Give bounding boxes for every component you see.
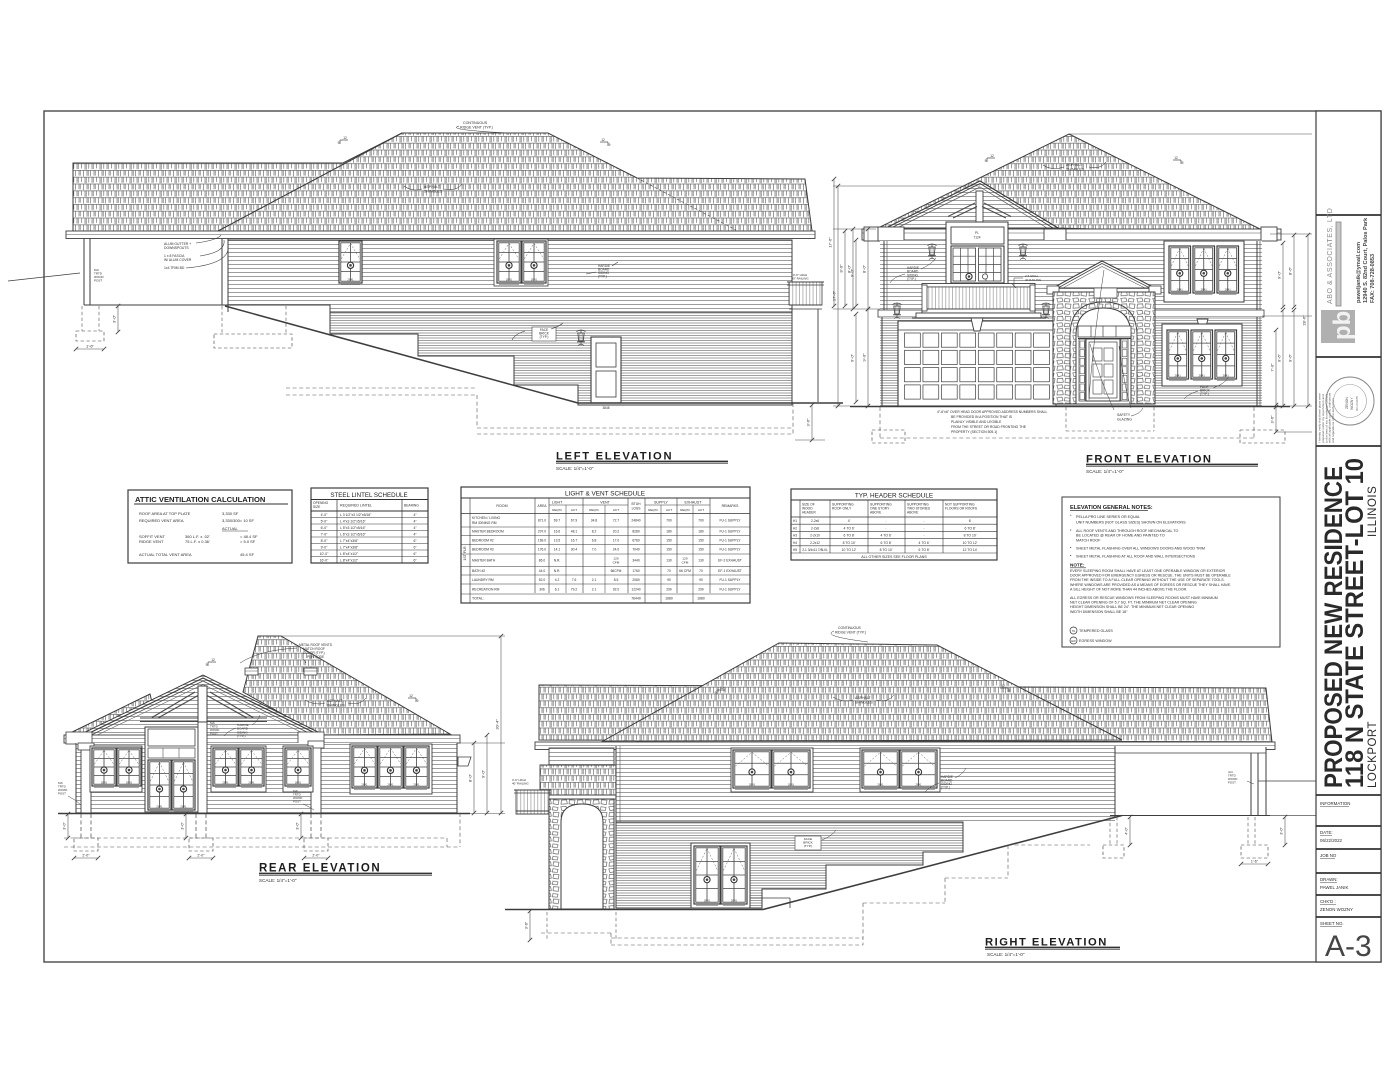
svg-text:13.5: 13.5 (554, 538, 561, 542)
svg-text:92.0: 92.0 (613, 587, 620, 591)
svg-text:4 TO 6': 4 TO 6' (919, 541, 930, 545)
svg-text:PAWEL JANIK: PAWEL JANIK (1320, 885, 1348, 890)
svg-text:2-2x8: 2-2x8 (811, 526, 819, 530)
svg-text:9: 9 (206, 663, 208, 667)
svg-text:WHERE WINDOWS ARE PROVIDED AS: WHERE WINDOWS ARE PROVIDED AS A MEANS OF… (1070, 583, 1231, 587)
svg-text:5'-0": 5'-0" (321, 520, 329, 524)
svg-text:700: 700 (698, 519, 704, 523)
svg-text:L 7"x4"x3/8": L 7"x4"x3/8" (340, 546, 359, 550)
svg-text:RECREATION RM: RECREATION RM (472, 587, 500, 591)
svg-text:12: 12 (343, 136, 347, 140)
svg-text:150: 150 (698, 538, 704, 542)
svg-text:10 TO 12': 10 TO 12' (842, 548, 857, 552)
svg-text:1680: 1680 (665, 597, 673, 601)
svg-text:8'-0": 8'-0" (468, 773, 473, 782)
svg-text:150: 150 (698, 548, 704, 552)
svg-text:LAUNDRY RM: LAUNDRY RM (472, 578, 494, 582)
svg-text:2.1: 2.1 (592, 578, 597, 582)
svg-text:ACTUAL: ACTUAL (222, 526, 239, 531)
svg-text:ALL EGRESS OR RESCUE WINDOWS F: ALL EGRESS OR RESCUE WINDOWS FROM SLEEPI… (1070, 596, 1218, 600)
svg-text:7124: 7124 (973, 236, 980, 240)
svg-text:2841: 2841 (1223, 374, 1230, 378)
svg-text:3'-6": 3'-6" (525, 921, 529, 929)
svg-text:CONTINUOUS: CONTINUOUS (838, 626, 862, 630)
svg-text:17.0: 17.0 (613, 538, 620, 542)
svg-text:8'-0": 8'-0" (321, 539, 329, 543)
svg-text:180: 180 (666, 530, 672, 534)
svg-text:6 TO 8': 6 TO 8' (844, 534, 855, 538)
svg-text:EGRESS WINDOW: EGRESS WINDOW (1079, 639, 1112, 643)
svg-text:4': 4' (848, 519, 851, 523)
svg-text:2841: 2841 (1225, 288, 1232, 292)
svg-text:EW: EW (1071, 639, 1076, 643)
svg-text:FAX: 708-728-0853: FAX: 708-728-0853 (1370, 254, 1376, 303)
svg-text:SHEET METAL FLASHING OVER ALL: SHEET METAL FLASHING OVER ALL WINDOWS DO… (1076, 547, 1205, 551)
svg-text:FU-1 SUPPLY: FU-1 SUPPLY (719, 538, 741, 542)
svg-text:NET CLEAR OPENING OF 5.7 SQ. F: NET CLEAR OPENING OF 5.7 SQ. FT. THE MIN… (1070, 601, 1197, 605)
svg-text:POST: POST (1228, 781, 1236, 785)
svg-text:MASTER BATH: MASTER BATH (472, 559, 496, 563)
svg-text:24840: 24840 (631, 519, 640, 523)
svg-text:-: - (885, 526, 886, 530)
svg-text:8'-0": 8'-0" (847, 264, 852, 273)
svg-text:3,330 SF: 3,330 SF (222, 511, 239, 516)
svg-text:ACT: ACT (666, 508, 672, 512)
svg-text:2841: 2841 (222, 781, 229, 785)
svg-text:2-1 3/4x11 7/8LVL: 2-1 3/4x11 7/8LVL (802, 548, 828, 552)
svg-text:12: 12 (211, 658, 215, 662)
svg-text:6760: 6760 (632, 538, 640, 542)
svg-text:ELEVATION GENERAL NOTES:: ELEVATION GENERAL NOTES: (1070, 505, 1153, 511)
svg-text:CFM: CFM (682, 560, 689, 564)
svg-text:2841: 2841 (1175, 374, 1182, 378)
svg-text:4"-6"x6" OVER HEAD DOOR APPROV: 4"-6"x6" OVER HEAD DOOR APPROVED ADDRESS… (937, 410, 1048, 414)
svg-text:2841: 2841 (101, 781, 108, 785)
svg-text:40" RAILING: 40" RAILING (791, 277, 809, 281)
svg-text:SHINGLES: SHINGLES (855, 701, 873, 705)
svg-text:SCALE: 1/4"=1'-0": SCALE: 1/4"=1'-0" (556, 466, 594, 471)
svg-text:17'-6": 17'-6" (832, 290, 837, 301)
svg-text:UNIT NUMBERS (NOT GLASS SIZES): UNIT NUMBERS (NOT GLASS SIZES) SHOWN ON … (1076, 521, 1186, 525)
svg-text:A-3: A-3 (1325, 930, 1372, 963)
svg-text:JOB NO: JOB NO (1320, 853, 1337, 858)
svg-text:BEDROOM #3: BEDROOM #3 (472, 548, 494, 552)
svg-text:ALL OTHER SIZES SEE FLOOR PLAN: ALL OTHER SIZES SEE FLOOR PLANS (861, 555, 927, 559)
svg-text:30'-4": 30'-4" (495, 719, 500, 730)
svg-text:6'-0": 6'-0" (321, 526, 329, 530)
svg-text:INFORMATION: INFORMATION (1320, 801, 1350, 806)
svg-text:90: 90 (699, 578, 703, 582)
svg-text:H4: H4 (793, 541, 797, 545)
svg-text:90: 90 (667, 578, 671, 582)
svg-text:17'-6": 17'-6" (828, 237, 833, 248)
svg-text:L 8"x4"x1/2": L 8"x4"x1/2" (340, 559, 359, 563)
svg-text:2'-0": 2'-0" (82, 854, 90, 858)
svg-text:7'-0": 7'-0" (1270, 363, 1275, 372)
svg-text:2841: 2841 (1177, 288, 1184, 292)
svg-text:9'-0": 9'-0" (1277, 270, 1282, 279)
svg-text:6.1: 6.1 (555, 587, 560, 591)
svg-text:-: - (923, 526, 924, 530)
svg-text:ACT: ACT (613, 508, 619, 512)
svg-text:130: 130 (698, 559, 704, 563)
svg-text:-: - (923, 519, 924, 523)
svg-text:H5: H5 (793, 548, 797, 552)
svg-text:DOOR APPROVED FOR EMERGENCY EG: DOOR APPROVED FOR EMERGENCY EGRESS OR RE… (1070, 574, 1231, 578)
svg-text:(TYP.): (TYP.) (941, 786, 950, 790)
svg-text:3'-0": 3'-0" (181, 822, 185, 830)
svg-text:7'-0": 7'-0" (321, 533, 329, 537)
svg-text:2'-0": 2'-0" (197, 854, 205, 858)
svg-text:H2: H2 (793, 526, 797, 530)
svg-text:(TYP.): (TYP.) (237, 734, 246, 738)
svg-text:VENT: VENT (600, 501, 610, 505)
svg-text:16'-0": 16'-0" (320, 559, 329, 563)
svg-text:POST: POST (94, 279, 102, 283)
svg-text:AREA: AREA (538, 504, 548, 508)
svg-text:8'-0": 8'-0" (839, 264, 844, 273)
svg-text:9'-0": 9'-0" (862, 353, 867, 362)
svg-text:(TYP.): (TYP.) (598, 275, 607, 279)
svg-text:20.2: 20.2 (613, 530, 620, 534)
svg-text:EF-1 EXHAUST: EF-1 EXHAUST (718, 569, 742, 573)
svg-text:2841: 2841 (180, 805, 187, 809)
svg-text:FU-1 SUPPLY: FU-1 SUPPLY (719, 548, 741, 552)
svg-text:A SILL HEIGHT OF NOT MORE THAN: A SILL HEIGHT OF NOT MORE THAN 44 INCHES… (1070, 587, 1187, 591)
svg-text:HEIGHT DIMENSION SHALL BE 24".: HEIGHT DIMENSION SHALL BE 24". THE MINIM… (1070, 605, 1194, 609)
svg-text:FU-1 SUPPLY: FU-1 SUPPLY (719, 578, 741, 582)
svg-text:306: 306 (539, 587, 545, 591)
svg-text:STEEL LINTEL SCHEDULE: STEEL LINTEL SCHEDULE (330, 492, 407, 499)
svg-text:70: 70 (667, 569, 671, 573)
svg-text:10 TO 12': 10 TO 12' (963, 541, 978, 545)
svg-text:BATH #2: BATH #2 (472, 569, 485, 573)
svg-text:44.0: 44.0 (539, 569, 546, 573)
svg-text:4 TO 6': 4 TO 6' (881, 534, 892, 538)
svg-text:06/22/2022: 06/22/2022 (1320, 838, 1343, 843)
svg-text:TG: TG (1072, 629, 1076, 633)
svg-text:2841: 2841 (704, 899, 711, 903)
svg-text:9: 9 (338, 141, 340, 145)
svg-text:SHEET METAL FLASHING AT ALL RO: SHEET METAL FLASHING AT ALL ROOF AND WAL… (1076, 555, 1196, 559)
svg-text:8 TO 10': 8 TO 10' (880, 548, 893, 552)
svg-text:8'-0": 8'-0" (862, 264, 867, 273)
svg-text:4 TO 6': 4 TO 6' (844, 526, 855, 530)
svg-text:ROOM: ROOM (496, 504, 507, 508)
svg-text:6': 6' (969, 519, 972, 523)
svg-text:9'-0": 9'-0" (321, 546, 329, 550)
svg-text:9'-6": 9'-6" (1288, 353, 1293, 362)
svg-text:9: 9 (1009, 689, 1011, 693)
svg-text:FU-1 SUPPLY: FU-1 SUPPLY (719, 587, 741, 591)
svg-text:3440: 3440 (632, 559, 640, 563)
svg-text:ROOF ONLY: ROOF ONLY (832, 507, 852, 511)
svg-text:2841: 2841 (156, 805, 163, 809)
svg-text:4'-0": 4'-0" (1125, 827, 1129, 835)
svg-text:66CFM: 66CFM (611, 569, 622, 573)
svg-text:(TYP.): (TYP.) (540, 335, 549, 339)
svg-text:2841: 2841 (413, 783, 420, 787)
svg-text:GLAZING: GLAZING (1117, 418, 1132, 422)
svg-text:TEMPERED GLASS: TEMPERED GLASS (1079, 629, 1113, 633)
svg-text:8.5: 8.5 (614, 578, 619, 582)
svg-text:REQUIRED VENT AREA: REQUIRED VENT AREA (139, 518, 184, 523)
svg-text:L 6"x3 1/2"x5/16": L 6"x3 1/2"x5/16" (340, 533, 367, 537)
svg-text:TYP. HEADER SCHEDULE: TYP. HEADER SCHEDULE (855, 493, 933, 500)
svg-text:2080: 2080 (632, 578, 640, 582)
svg-text:BTUH: BTUH (632, 502, 642, 506)
svg-text:40" RAILING: 40" RAILING (512, 782, 529, 786)
svg-text:2-2x10: 2-2x10 (810, 534, 820, 538)
svg-text:12: 12 (1174, 156, 1178, 160)
svg-text:12 TO 14': 12 TO 14' (963, 548, 978, 552)
svg-text:SCALE: 1/4"=1'-0": SCALE: 1/4"=1'-0" (259, 878, 297, 883)
svg-text:79.2: 79.2 (571, 587, 578, 591)
svg-text:4'-0": 4'-0" (321, 513, 329, 517)
svg-text:ABO & ASSOCIATES, LTD: ABO & ASSOCIATES, LTD (1327, 208, 1334, 304)
svg-text:3'-0": 3'-0" (63, 822, 67, 830)
svg-text:6 TO 8': 6 TO 8' (919, 548, 930, 552)
svg-text:H3: H3 (793, 534, 797, 538)
svg-text:10'-0": 10'-0" (320, 552, 329, 556)
svg-text:FROM THE STREET OR ROAD FRONTI: FROM THE STREET OR ROAD FRONTING THE (951, 425, 1027, 429)
svg-text:2.1: 2.1 (592, 587, 597, 591)
svg-text:12: 12 (409, 694, 413, 698)
svg-text:ZENON: ZENON (1345, 397, 1349, 409)
svg-text:H1: H1 (793, 519, 797, 523)
svg-text:3'-6": 3'-6" (806, 418, 811, 427)
svg-text:8280: 8280 (632, 530, 640, 534)
svg-text:24.0: 24.0 (613, 548, 620, 552)
svg-text:45.4 SF: 45.4 SF (240, 552, 255, 557)
svg-text:ABOVE: ABOVE (870, 511, 882, 515)
svg-text:ACT: ACT (571, 508, 577, 512)
svg-text:16.6: 16.6 (554, 530, 561, 534)
svg-text:EVERY SLEEPING ROOM SHALL HAVE: EVERY SLEEPING ROOM SHALL HAVE AT LEAST … (1070, 569, 1225, 573)
svg-text:REQ'D: REQ'D (589, 508, 599, 512)
svg-text:ILLINOIS: ILLINOIS (1367, 486, 1379, 537)
svg-text:REQ'D: REQ'D (552, 508, 562, 512)
svg-text:PELLA PRO LINE SERIES OR EQUAL: PELLA PRO LINE SERIES OR EQUAL (1076, 515, 1140, 519)
svg-text:PL: PL (975, 231, 979, 235)
svg-text:9: 9 (985, 159, 987, 163)
svg-text:(TYP.): (TYP.) (1200, 392, 1209, 396)
svg-text:L 5"x3 1/2"x5/16": L 5"x3 1/2"x5/16" (340, 526, 367, 530)
svg-text:7.0: 7.0 (592, 548, 597, 552)
svg-text:SHEET NO.: SHEET NO. (1320, 921, 1344, 926)
svg-text:L 3 1/2"x3 1/2"x5/16": L 3 1/2"x3 1/2"x5/16" (340, 513, 372, 517)
svg-text:DATE:: DATE: (1320, 830, 1333, 835)
svg-text:RIDGE VENT: RIDGE VENT (139, 539, 164, 544)
svg-text:3848: 3848 (602, 406, 609, 410)
svg-text:SHINGLES: SHINGLES (424, 190, 443, 194)
svg-text:12: 12 (720, 686, 724, 690)
svg-text:SCALE: 1/4"=1'-0": SCALE: 1/4"=1'-0" (1086, 469, 1124, 474)
svg-text:3'-0": 3'-0" (296, 822, 300, 830)
svg-text:2841: 2841 (1201, 288, 1208, 292)
svg-text:2841: 2841 (915, 783, 922, 787)
svg-text:40 RAILING: 40 RAILING (1025, 278, 1042, 282)
svg-text:12: 12 (601, 138, 605, 142)
svg-text:2841: 2841 (506, 278, 513, 282)
svg-text:2841: 2841 (877, 783, 884, 787)
svg-text:9'-6": 9'-6" (1277, 353, 1282, 362)
svg-text:RIDGE VENT (TYP.): RIDGE VENT (TYP.) (835, 631, 866, 635)
svg-text:POST: POST (210, 732, 218, 736)
svg-text:150: 150 (666, 548, 672, 552)
svg-text:SAFETY: SAFETY (1117, 413, 1131, 417)
svg-text:30.4: 30.4 (571, 548, 578, 552)
svg-text:BE PROVIDED IN A POSITION THAT: BE PROVIDED IN A POSITION THAT IS (951, 415, 1013, 419)
svg-text:SIZE: SIZE (313, 505, 321, 509)
svg-text:48.1: 48.1 (571, 530, 578, 534)
svg-text:52.0: 52.0 (539, 578, 546, 582)
svg-text:ACTUAL TOTAL VENT AREA: ACTUAL TOTAL VENT AREA (139, 552, 192, 557)
svg-text:12240: 12240 (631, 587, 640, 591)
svg-text:DRAWN:: DRAWN: (1320, 877, 1338, 882)
svg-text:ABOVE: ABOVE (907, 511, 919, 515)
svg-text:FU-1 SUPPLY: FU-1 SUPPLY (719, 519, 741, 523)
svg-text:EF-2 EXHAUST: EF-2 EXHAUST (718, 559, 742, 563)
svg-text:1'-6": 1'-6" (86, 344, 95, 349)
svg-text:KITCHEN / LIVING: KITCHEN / LIVING (472, 516, 500, 520)
svg-text:RM /DINING RM: RM /DINING RM (472, 521, 497, 525)
svg-text:8 TO 10': 8 TO 10' (843, 541, 856, 545)
svg-text:9'-0": 9'-0" (850, 353, 855, 362)
svg-text:2841: 2841 (1199, 374, 1206, 378)
svg-text:ASPHALT: ASPHALT (1066, 163, 1083, 167)
svg-text:CHK'D :: CHK'D : (1320, 899, 1336, 904)
svg-text:N.R.: N.R. (554, 569, 561, 573)
svg-text:REMARKS: REMARKS (722, 504, 740, 508)
svg-text:(TYP.): (TYP.) (907, 277, 916, 281)
svg-text:2-2x6: 2-2x6 (811, 519, 819, 523)
svg-text:SUPPLY: SUPPLY (654, 501, 669, 505)
svg-text:70: 70 (699, 569, 703, 573)
svg-text:72.7: 72.7 (613, 519, 620, 523)
svg-text:16.7: 16.7 (571, 538, 578, 542)
svg-text:12: 12 (990, 154, 994, 158)
svg-text:ROOF AREA AT TOP PLATE: ROOF AREA AT TOP PLATE (139, 511, 191, 516)
svg-text:14.1: 14.1 (554, 548, 561, 552)
svg-text:1'-6": 1'-6" (1251, 860, 1259, 864)
svg-text:8'-6": 8'-6" (1288, 266, 1293, 275)
svg-text:BEDROOM #2: BEDROOM #2 (472, 538, 494, 542)
svg-text:2841: 2841 (749, 783, 756, 787)
svg-text:ALL ROOF VENTS AND THROUGH ROO: ALL ROOF VENTS AND THROUGH ROOF MECHANIC… (1076, 529, 1179, 533)
svg-text:7040: 7040 (632, 548, 640, 552)
svg-text:2841: 2841 (387, 783, 394, 787)
svg-text:ASPHALT: ASPHALT (327, 699, 344, 703)
svg-text:871.0: 871.0 (538, 519, 546, 523)
svg-text:NOTE:: NOTE: (1070, 563, 1085, 568)
svg-text:MASTER BEDROOM: MASTER BEDROOM (472, 530, 504, 534)
svg-text:L 4"x3 1/2"x5/16": L 4"x3 1/2"x5/16" (340, 520, 367, 524)
svg-text:2841: 2841 (731, 899, 738, 903)
svg-text:150: 150 (666, 538, 672, 542)
svg-text:EXHAUST: EXHAUST (685, 501, 703, 505)
svg-text:POST: POST (58, 792, 66, 796)
svg-text:ACT: ACT (698, 508, 704, 512)
svg-text:LOSS: LOSS (632, 507, 642, 511)
svg-text:REQ'D: REQ'D (648, 508, 658, 512)
svg-text:76440: 76440 (631, 597, 641, 601)
svg-text:ATTIC VENTILATION CALCULATION: ATTIC VENTILATION CALCULATION (135, 495, 265, 504)
svg-text:ASPHALT: ASPHALT (424, 185, 441, 189)
svg-text:7.6: 7.6 (572, 578, 577, 582)
svg-text:PLAINLY VISIBLE AND LEGIBLE: PLAINLY VISIBLE AND LEGIBLE (951, 420, 1002, 424)
svg-text:CONTINUOUS: CONTINUOUS (463, 121, 488, 125)
svg-text:SCALE: 1/4"=1'-0": SCALE: 1/4"=1'-0" (987, 952, 1025, 957)
svg-text:N.R.: N.R. (554, 559, 561, 563)
svg-text:1ST FLR.: 1ST FLR. (463, 545, 467, 560)
svg-text:W/ ALUM COVER: W/ ALUM COVER (164, 258, 192, 262)
svg-text:2841: 2841 (248, 781, 255, 785)
svg-text:L 8"x4"x1/2": L 8"x4"x1/2" (340, 552, 359, 556)
svg-text:176.0: 176.0 (538, 548, 546, 552)
svg-text:BEARING: BEARING (404, 504, 419, 508)
svg-text:69.7: 69.7 (554, 519, 561, 523)
svg-text:LIGHT: LIGHT (552, 501, 563, 505)
svg-text:REQ'D: REQ'D (680, 508, 690, 512)
svg-text:2841: 2841 (347, 278, 354, 282)
svg-text:WIDTH DIMENSION SHALL BE 18": WIDTH DIMENSION SHALL BE 18" (1070, 610, 1128, 614)
svg-text:9: 9 (609, 143, 611, 147)
svg-text:3'-0": 3'-0" (1280, 827, 1284, 835)
svg-text:28'-6": 28'-6" (1302, 315, 1307, 326)
svg-text:paweljanik@ymail.com: paweljanik@ymail.com (1356, 242, 1362, 303)
svg-text:2841: 2841 (788, 783, 795, 787)
svg-text:CFM: CFM (613, 560, 620, 564)
svg-text:118 N STATE STREET-LOT 10: 118 N STATE STREET-LOT 10 (1341, 458, 1369, 788)
svg-text:75 L.F. x 0.36': 75 L.F. x 0.36' (185, 539, 210, 544)
svg-text:290: 290 (666, 587, 672, 591)
svg-text:207.0: 207.0 (538, 530, 546, 534)
svg-text:= 5.0 SF: = 5.0 SF (240, 539, 256, 544)
svg-text:and regulations of the authori: and regulations of the authorities (1331, 398, 1335, 443)
svg-text:LOCKPORT: LOCKPORT (1367, 721, 1379, 788)
svg-text:9: 9 (417, 699, 419, 703)
svg-text:6 TO 8': 6 TO 8' (881, 541, 892, 545)
svg-text:REQUIRED LINTEL: REQUIRED LINTEL (340, 504, 372, 508)
svg-text:BE LOCATED @ REAR OF HOME AND: BE LOCATED @ REAR OF HOME AND PAINTED TO (1076, 534, 1165, 538)
svg-text:ASPHALT: ASPHALT (855, 696, 872, 700)
svg-text:SHINGLES: SHINGLES (1066, 168, 1085, 172)
svg-text:180: 180 (698, 530, 704, 534)
svg-text:9: 9 (1182, 161, 1184, 165)
svg-text:8 TO 10': 8 TO 10' (964, 534, 977, 538)
svg-text:SHINGLES: SHINGLES (327, 704, 345, 708)
svg-text:FROM THE INSIDE TO A FULL CLEA: FROM THE INSIDE TO A FULL CLEAR OPENING … (1070, 578, 1225, 582)
svg-text:290: 290 (698, 587, 704, 591)
svg-text:3'-0": 3'-0" (112, 314, 117, 323)
svg-text:L 7"x4"x3/8": L 7"x4"x3/8" (340, 539, 359, 543)
svg-text:001-010655: 001-010655 (1355, 396, 1359, 411)
svg-text:-: - (923, 534, 924, 538)
svg-text:2841: 2841 (295, 781, 302, 785)
svg-text:2841: 2841 (361, 783, 368, 787)
svg-text:169.0: 169.0 (538, 538, 546, 542)
svg-text:130: 130 (666, 559, 672, 563)
svg-text:8.2: 8.2 (592, 530, 597, 534)
svg-text:700: 700 (666, 519, 672, 523)
svg-text:6 TO 8': 6 TO 8' (965, 526, 976, 530)
svg-text:1x4 TRIM BD: 1x4 TRIM BD (164, 266, 185, 270)
svg-text:4.2: 4.2 (555, 578, 560, 582)
svg-text:2-2x12: 2-2x12 (810, 541, 820, 545)
svg-text:3'-6": 3'-6" (1270, 415, 1275, 424)
svg-text:FU-1 SUPPLY: FU-1 SUPPLY (719, 530, 741, 534)
